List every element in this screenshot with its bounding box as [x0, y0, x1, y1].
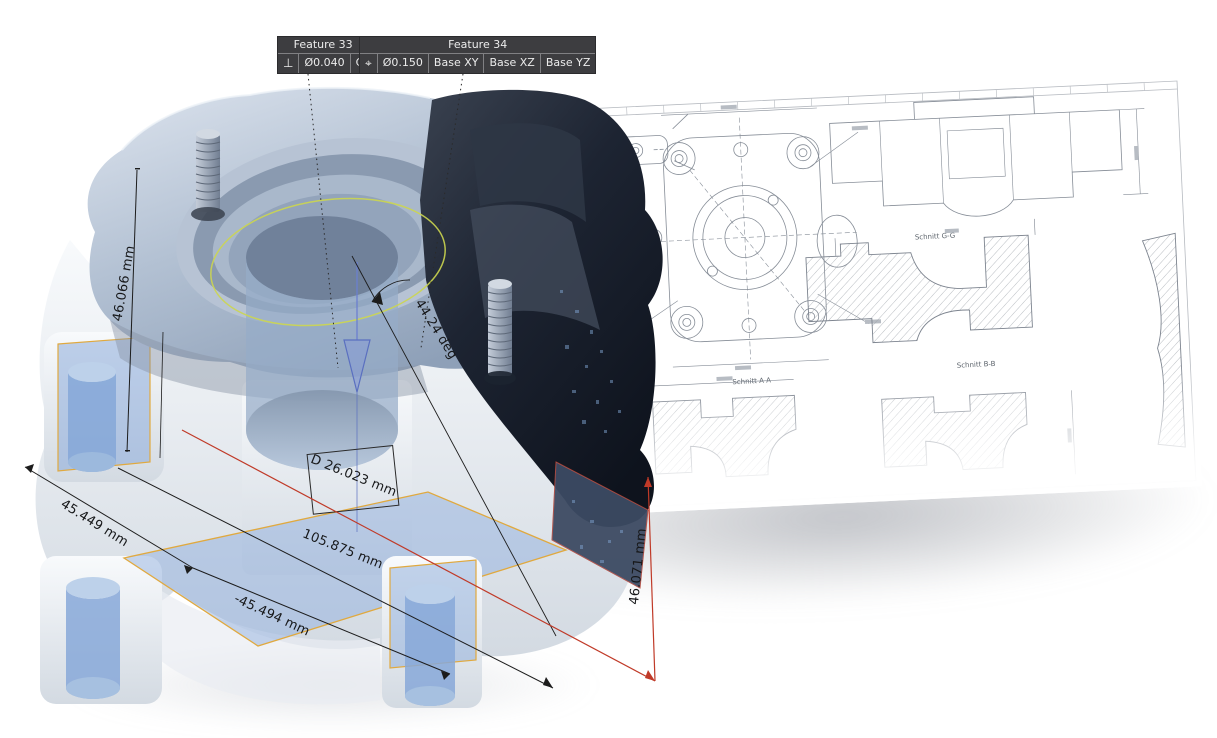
feature-33-callout[interactable]: Feature 33 ⊥ Ø0.040 C	[277, 36, 369, 74]
feature-33-title: Feature 33	[278, 37, 368, 54]
feature-34-datum-xz: Base XZ	[484, 54, 540, 73]
feature-34-title: Feature 34	[360, 37, 595, 54]
feature-33-tolerance: Ø0.040	[299, 54, 350, 73]
threaded-stud-left	[191, 129, 225, 221]
bottom-center-foot	[382, 556, 482, 708]
feature-34-datum-yz: Base YZ	[541, 54, 596, 73]
cad-inspection-screenshot: { "viewport": { "name": "3D inspection v…	[0, 0, 1217, 738]
feature-34-datum-xy: Base XY	[429, 54, 485, 73]
feature-34-tolerance: Ø0.150	[378, 54, 429, 73]
feature-34-callout[interactable]: Feature 34 ⌖ Ø0.150 Base XY Base XZ Base…	[359, 36, 596, 74]
position-icon: ⌖	[360, 54, 378, 73]
lower-left-foot	[40, 556, 162, 704]
threaded-stud-right	[484, 279, 516, 385]
cad-model-viewport[interactable]	[0, 0, 1217, 738]
perpendicularity-icon: ⊥	[278, 54, 299, 73]
